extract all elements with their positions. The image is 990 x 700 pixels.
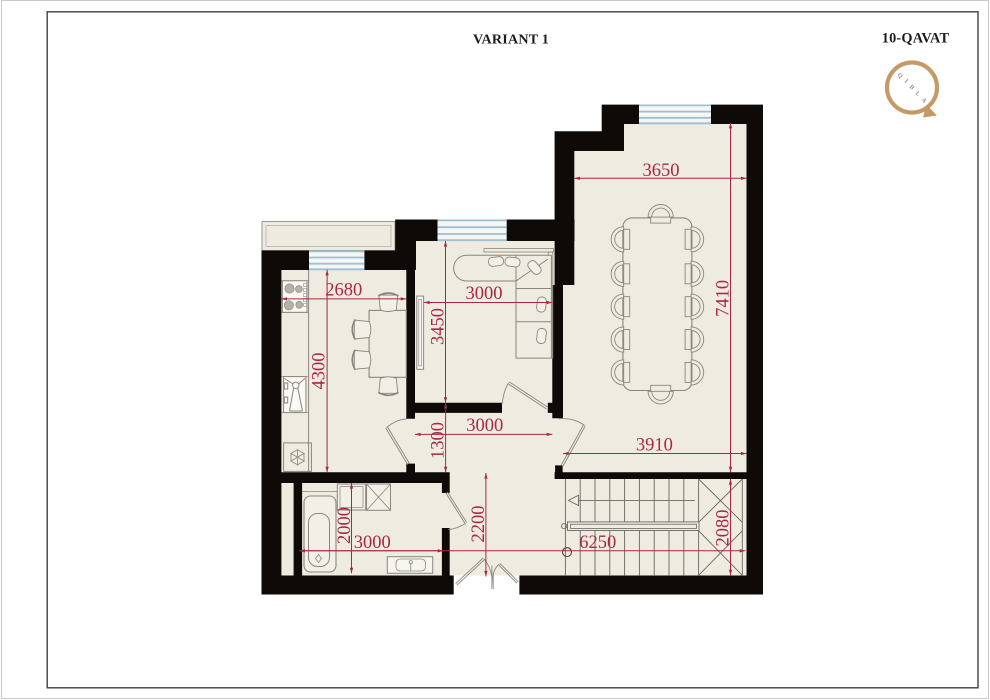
svg-text:10-QAVAT: 10-QAVAT [882, 30, 950, 46]
svg-text:2680: 2680 [325, 281, 362, 301]
svg-text:3000: 3000 [466, 416, 503, 436]
svg-text:VARIANT 1: VARIANT 1 [473, 31, 549, 47]
svg-text:2200: 2200 [469, 506, 489, 543]
svg-text:2080: 2080 [713, 510, 733, 547]
svg-text:3000: 3000 [354, 533, 391, 553]
svg-text:3000: 3000 [466, 284, 503, 304]
svg-text:7410: 7410 [713, 280, 733, 317]
svg-text:3650: 3650 [643, 161, 680, 181]
svg-text:6250: 6250 [579, 533, 616, 553]
svg-text:4300: 4300 [309, 353, 329, 390]
svg-text:2000: 2000 [335, 507, 355, 544]
svg-text:1300: 1300 [429, 422, 449, 459]
svg-text:3910: 3910 [636, 435, 673, 455]
svg-text:3450: 3450 [429, 308, 449, 345]
